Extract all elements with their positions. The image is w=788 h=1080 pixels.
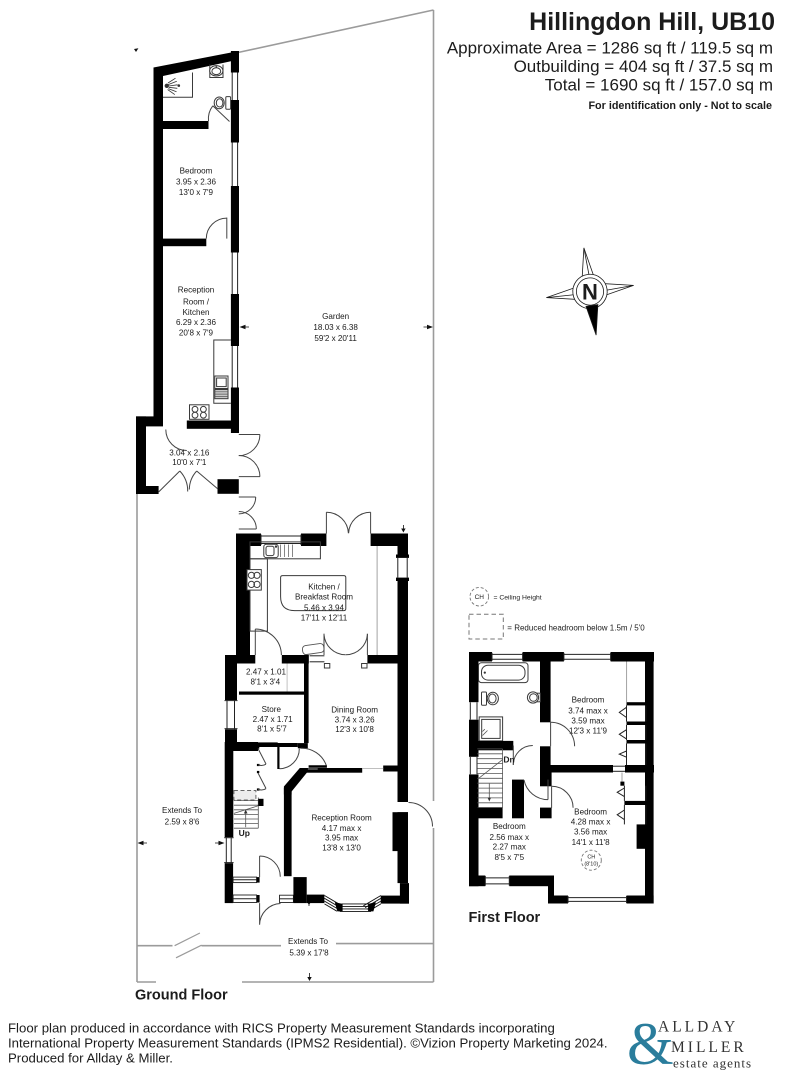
svg-text:Room /: Room /: [183, 297, 210, 306]
svg-text:3.59 max: 3.59 max: [571, 716, 604, 725]
svg-text:2.47 x 1.01: 2.47 x 1.01: [246, 668, 287, 677]
svg-text:3.95 x 2.36: 3.95 x 2.36: [176, 177, 217, 186]
svg-text:CH: CH: [475, 594, 485, 601]
svg-text:12'3 x 10'8: 12'3 x 10'8: [335, 725, 374, 734]
svg-text:Garden: Garden: [322, 312, 349, 321]
svg-text:2.56 max x: 2.56 max x: [490, 833, 530, 842]
svg-text:3.95 max: 3.95 max: [325, 834, 358, 843]
svg-text:4.17 max x: 4.17 max x: [322, 824, 362, 833]
svg-text:3.56 max: 3.56 max: [574, 828, 607, 837]
svg-text:2.27 max: 2.27 max: [493, 843, 526, 852]
svg-text:Dn: Dn: [503, 754, 514, 764]
svg-text:International Property Measure: International Property Measurement Stand…: [8, 1036, 608, 1051]
svg-text:3.04 x 2.16: 3.04 x 2.16: [169, 449, 210, 458]
svg-text:6.29 x 2.36: 6.29 x 2.36: [176, 318, 217, 327]
svg-text:= Reduced headroom below 1.5m: = Reduced headroom below 1.5m / 5'0: [507, 624, 645, 633]
svg-text:13'8 x 13'0: 13'8 x 13'0: [322, 843, 361, 852]
svg-text:Dining Room: Dining Room: [331, 706, 378, 715]
svg-text:3.74 max x: 3.74 max x: [568, 706, 608, 715]
svg-text:18.03 x 6.38: 18.03 x 6.38: [313, 323, 358, 332]
svg-text:59'2 x 20'11: 59'2 x 20'11: [314, 334, 357, 343]
svg-text:For identification only - Not: For identification only - Not to scale: [588, 100, 772, 112]
svg-text:Kitchen: Kitchen: [183, 308, 210, 317]
svg-text:MILLER: MILLER: [671, 1039, 747, 1056]
svg-text:2.47 x 1.71: 2.47 x 1.71: [253, 715, 294, 724]
svg-text:Breakfast Room: Breakfast Room: [295, 593, 353, 602]
svg-text:Floor plan produced in accorda: Floor plan produced in accordance with R…: [8, 1021, 555, 1036]
svg-text:Bedroom: Bedroom: [180, 167, 213, 176]
svg-text:Ground Floor: Ground Floor: [135, 988, 228, 1004]
svg-text:Produced for Allday & Miller.: Produced for Allday & Miller.: [8, 1051, 173, 1066]
svg-text:Kitchen /: Kitchen /: [308, 583, 340, 592]
svg-text:(8'10): (8'10): [584, 862, 598, 868]
svg-text:Hillingdon Hill, UB10: Hillingdon Hill, UB10: [529, 8, 775, 36]
svg-text:Bedroom: Bedroom: [574, 808, 607, 817]
svg-text:17'11 x 12'11: 17'11 x 12'11: [301, 613, 348, 622]
svg-text:Bedroom: Bedroom: [572, 696, 605, 705]
svg-text:Outbuilding = 404 sq ft / 37.5: Outbuilding = 404 sq ft / 37.5 sq m: [514, 57, 773, 76]
svg-text:Extends To: Extends To: [288, 937, 328, 946]
svg-text:N: N: [582, 280, 598, 305]
svg-text:5.46 x 3.94: 5.46 x 3.94: [304, 604, 345, 613]
svg-text:Bedroom: Bedroom: [493, 822, 526, 831]
svg-text:20'8 x 7'9: 20'8 x 7'9: [179, 328, 214, 337]
svg-text:8'1 x 5'7: 8'1 x 5'7: [257, 725, 287, 734]
svg-text:8'1 x 3'4: 8'1 x 3'4: [250, 678, 280, 687]
svg-text:2.59 x 8'6: 2.59 x 8'6: [165, 817, 200, 826]
svg-text:Reception: Reception: [178, 285, 214, 294]
svg-text:3.74 x 3.26: 3.74 x 3.26: [335, 715, 376, 724]
svg-text:First Floor: First Floor: [469, 910, 541, 926]
svg-text:5.39 x 17'8: 5.39 x 17'8: [289, 949, 329, 958]
svg-text:Total = 1690 sq ft / 157.0 sq: Total = 1690 sq ft / 157.0 sq m: [545, 76, 773, 95]
svg-text:12'3 x 11'9: 12'3 x 11'9: [569, 726, 608, 735]
svg-text:13'0 x 7'9: 13'0 x 7'9: [179, 188, 214, 197]
svg-text:CH: CH: [587, 855, 595, 861]
svg-text:Store: Store: [262, 705, 282, 714]
svg-text:= Ceiling Height: = Ceiling Height: [494, 594, 542, 601]
svg-text:Reception Room: Reception Room: [311, 813, 372, 822]
svg-text:Up: Up: [239, 828, 250, 838]
svg-text:Extends To: Extends To: [162, 806, 202, 815]
svg-text:4.28 max x: 4.28 max x: [571, 818, 611, 827]
svg-text:10'0 x 7'1: 10'0 x 7'1: [172, 458, 207, 467]
svg-text:8'5 x 7'5: 8'5 x 7'5: [494, 853, 524, 862]
svg-text:14'1 x 11'8: 14'1 x 11'8: [572, 838, 611, 847]
svg-text:ALLDAY: ALLDAY: [658, 1019, 738, 1036]
svg-text:Approximate Area = 1286 sq ft: Approximate Area = 1286 sq ft / 119.5 sq…: [447, 39, 773, 58]
svg-text:estate agents: estate agents: [673, 1056, 752, 1071]
